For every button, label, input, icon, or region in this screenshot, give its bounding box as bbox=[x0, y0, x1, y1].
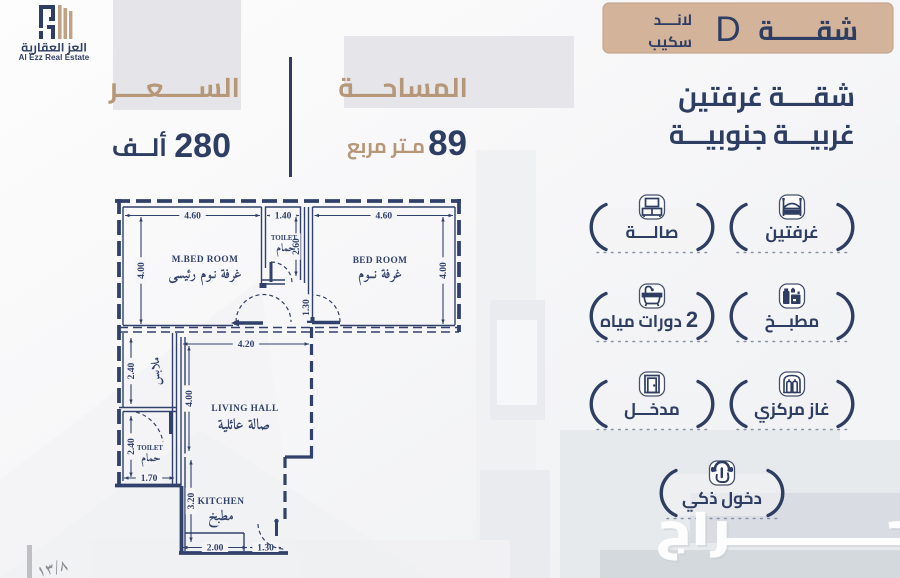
svg-text:LIVING HALL: LIVING HALL bbox=[211, 404, 278, 414]
svg-text:2.40: 2.40 bbox=[127, 362, 137, 379]
svg-text:4.60: 4.60 bbox=[184, 212, 201, 222]
svg-text:1.70: 1.70 bbox=[141, 474, 158, 484]
svg-text:4.00: 4.00 bbox=[137, 262, 147, 279]
svg-text:2.40: 2.40 bbox=[127, 438, 137, 455]
svg-text:1.30: 1.30 bbox=[302, 299, 312, 316]
svg-text:KITCHEN: KITCHEN bbox=[198, 497, 245, 507]
svg-text:1.30: 1.30 bbox=[257, 544, 274, 554]
svg-text:3.20: 3.20 bbox=[187, 492, 197, 509]
svg-text:2: 2 bbox=[686, 307, 698, 332]
svg-text:TOILET: TOILET bbox=[271, 235, 297, 242]
svg-text:M.BED ROOM: M.BED ROOM bbox=[172, 255, 239, 265]
svg-text:BED ROOM: BED ROOM bbox=[353, 256, 408, 266]
svg-text:1.40: 1.40 bbox=[275, 212, 292, 222]
svg-text:D: D bbox=[715, 10, 740, 49]
svg-text:TOILET: TOILET bbox=[137, 445, 163, 452]
svg-text:4.00: 4.00 bbox=[439, 262, 449, 279]
svg-text:280: 280 bbox=[174, 127, 231, 165]
svg-text:4.00: 4.00 bbox=[185, 390, 195, 407]
svg-text:89: 89 bbox=[428, 124, 467, 163]
svg-text:4.20: 4.20 bbox=[238, 340, 255, 350]
svg-text:Al Ezz Real Estate: Al Ezz Real Estate bbox=[19, 53, 90, 62]
svg-text:2.00: 2.00 bbox=[207, 544, 224, 554]
svg-text:4.60: 4.60 bbox=[375, 212, 392, 222]
